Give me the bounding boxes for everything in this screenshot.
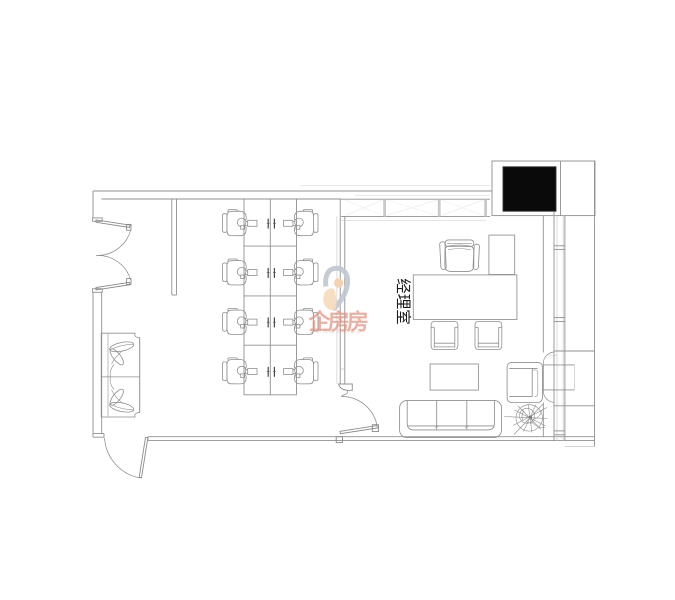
svg-text:经理室: 经理室 — [394, 278, 412, 325]
svg-text:企房房企房房企房: 企房房企房房企房 — [310, 328, 364, 335]
